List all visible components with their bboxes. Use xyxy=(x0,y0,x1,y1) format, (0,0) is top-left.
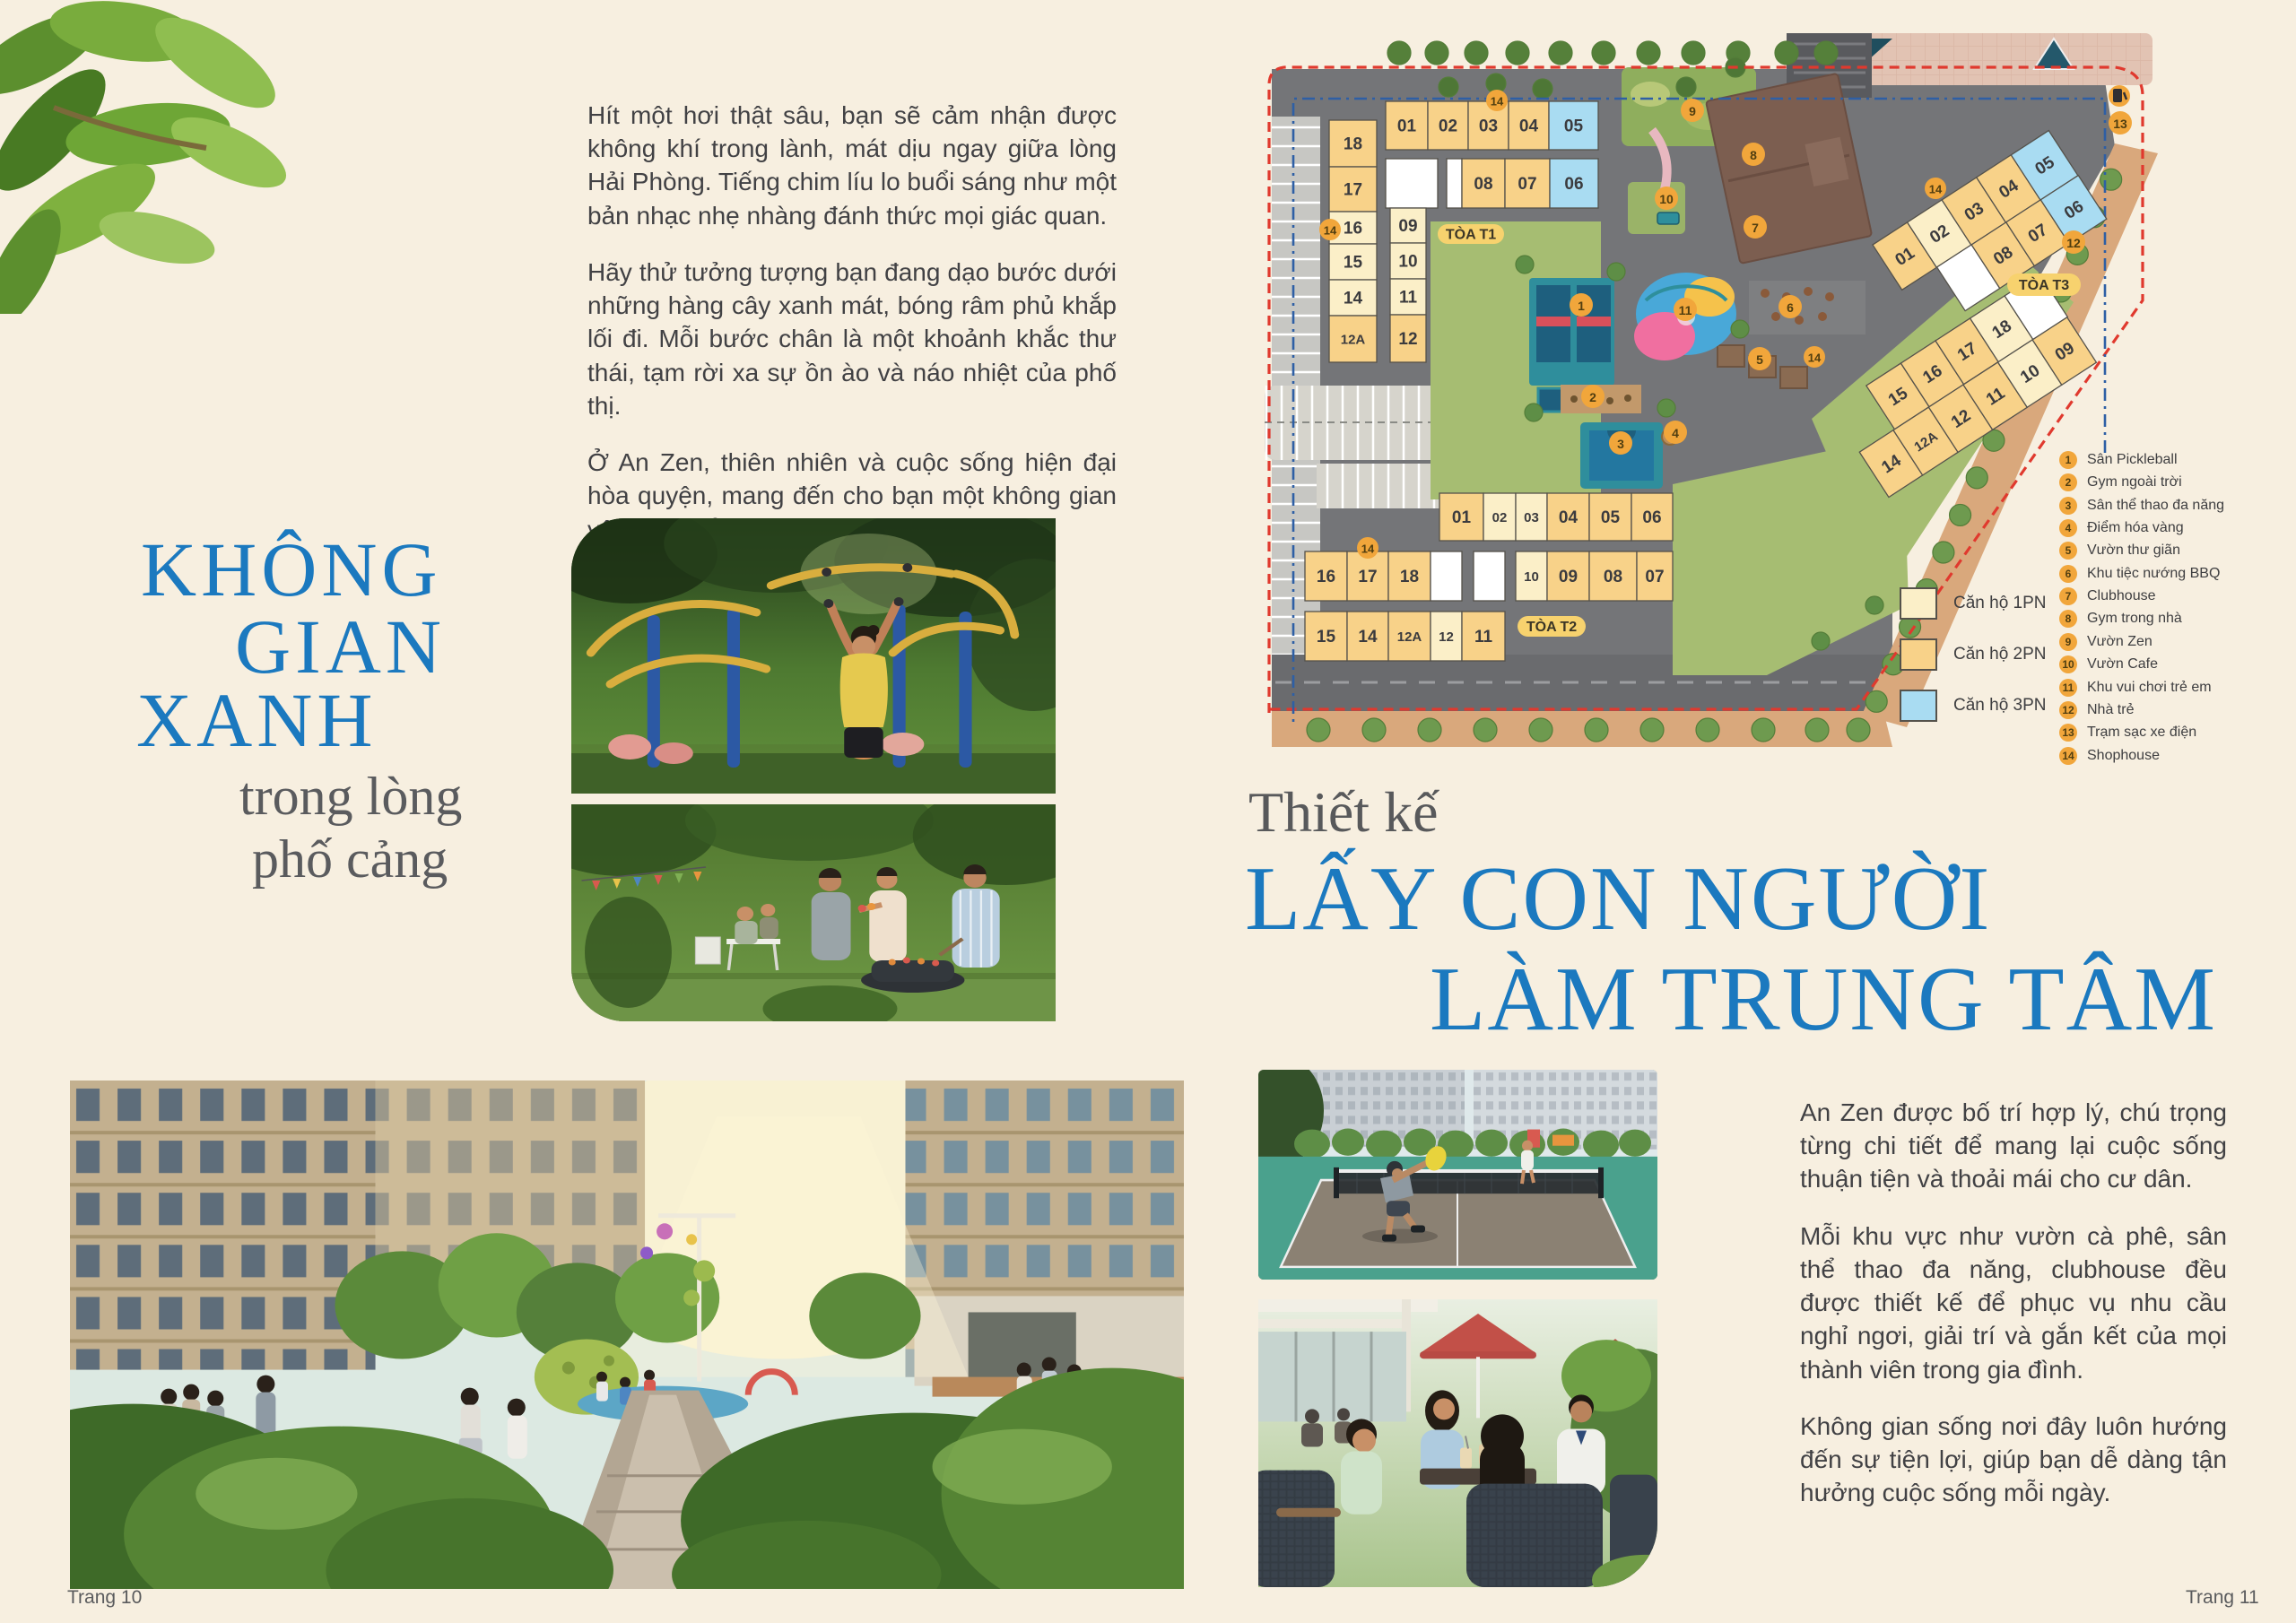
tree-icon xyxy=(1516,256,1534,273)
photo-cafe-family-art xyxy=(1258,1299,1657,1587)
unit-cell-label: 18 xyxy=(1400,568,1419,586)
unit-type-legend: Căn hộ 1PNCăn hộ 2PNCăn hộ 3PN xyxy=(1900,587,2047,741)
amenity-badge-number: 9 xyxy=(1689,104,1696,118)
legend-unit-type: Căn hộ 2PN xyxy=(1900,638,2047,671)
amenity-badge-number: 6 xyxy=(1787,300,1794,315)
unit-cell-label: 12A xyxy=(1397,629,1422,645)
unit-cell-label: 12A xyxy=(1341,333,1366,348)
tree-icon xyxy=(1775,41,1798,65)
legend-amenity-item: 14Shophouse xyxy=(2059,747,2224,765)
tree-icon xyxy=(1682,41,1705,65)
unit-cell-label: 09 xyxy=(1559,568,1578,586)
unit-cell-label: 14 xyxy=(1358,628,1378,647)
tree-icon xyxy=(1637,41,1660,65)
amenity-label: Điểm hóa vàng xyxy=(2087,520,2184,536)
tree-icon xyxy=(1418,718,1441,742)
amenity-badge: 11 xyxy=(2059,679,2077,697)
headline-line: KHÔNG xyxy=(141,531,442,608)
amenity-label: Vườn thư giãn xyxy=(2087,542,2180,559)
tree-icon xyxy=(1362,718,1386,742)
photo-bbq-garden xyxy=(571,804,1056,1021)
amenity-badge-number: 11 xyxy=(1679,303,1692,317)
leaf-decoration xyxy=(0,0,386,314)
amenity-badge-number: 5 xyxy=(1756,352,1763,367)
amenity-badge-number: 3 xyxy=(1617,437,1624,451)
tree-icon xyxy=(1865,596,1883,614)
tree-icon xyxy=(1549,41,1572,65)
amenity-badge: 4 xyxy=(2059,519,2077,537)
amenity-badge: 9 xyxy=(2059,633,2077,651)
legend-amenity-item: 13Trạm sạc xe điện xyxy=(2059,725,2224,742)
headline-sub: trong lòng xyxy=(239,769,462,823)
unit-cell-label: 14 xyxy=(1344,290,1363,308)
unit-type-swatch xyxy=(1900,587,1937,620)
photo-courtyard xyxy=(70,1081,1184,1589)
intro-text: Hít một hơi thật sâu, bạn sẽ cảm nhận đư… xyxy=(587,99,1117,569)
unit-cell-label: 08 xyxy=(1604,568,1622,586)
tree-icon xyxy=(1805,718,1829,742)
legend-amenity-item: 8Gym trong nhà xyxy=(2059,611,2224,629)
amenity-label: Clubhouse xyxy=(2087,588,2156,604)
amenity-badge-number: 1 xyxy=(1578,299,1585,313)
unit-cell-label: 16 xyxy=(1317,568,1335,586)
tree-icon xyxy=(1525,404,1543,421)
amenity-badge: 3 xyxy=(2059,497,2077,515)
amenity-badge: 5 xyxy=(2059,542,2077,560)
amenity-badge-number: 14 xyxy=(1929,183,1943,196)
unit-cell-label: 08 xyxy=(1474,175,1492,194)
tree-icon xyxy=(1607,263,1625,281)
headline-sub: phố cảng xyxy=(252,832,448,886)
unit-cell-label: 12 xyxy=(1398,330,1417,349)
unit-cell-label: 15 xyxy=(1344,254,1363,273)
headline-line: GIAN xyxy=(235,608,446,685)
page-number-right: Trang 11 xyxy=(2186,1587,2259,1609)
amenity-label: Vườn Zen xyxy=(2087,634,2152,650)
amenity-badge-number: 10 xyxy=(1659,192,1674,206)
legend-amenity-item: 10Vườn Cafe xyxy=(2059,656,2224,674)
amenity-badge-number: 12 xyxy=(2066,236,2081,250)
legend-amenity-item: 12Nhà trẻ xyxy=(2059,701,2224,719)
unit-cell-label: 17 xyxy=(1358,568,1377,586)
amenity-label: Shophouse xyxy=(2087,748,2160,764)
tree-icon xyxy=(1425,41,1448,65)
unit-cell-label: 04 xyxy=(1559,508,1578,527)
amenity-label: Vườn Cafe xyxy=(2087,656,2158,673)
unit-cell-label: 05 xyxy=(1564,117,1584,136)
legend-amenity-item: 6Khu tiệc nướng BBQ xyxy=(2059,565,2224,583)
photo-courtyard-art xyxy=(70,1081,1184,1589)
amenity-badge: 10 xyxy=(2059,655,2077,673)
page-number-left: Trang 10 xyxy=(67,1587,142,1609)
legend-amenity-item: 5Vườn thư giãn xyxy=(2059,542,2224,560)
unit-cell-label: 06 xyxy=(1564,175,1583,194)
unit-cell-label: 02 xyxy=(1492,510,1508,525)
brochure-spread: { "page_bg": "#F7EFE0", "accent_blue": "… xyxy=(0,0,2296,1623)
unit-cell-label: 16 xyxy=(1344,220,1362,239)
unit-cell-label: 10 xyxy=(1398,253,1417,272)
design-title-line1: LẤY CON NGƯỜI xyxy=(1245,854,1991,945)
tree-icon xyxy=(1814,41,1838,65)
design-text: An Zen được bố trí hợp lý, chú trọng từn… xyxy=(1800,1096,2227,1533)
tree-icon xyxy=(1307,718,1330,742)
amenity-badge-number: 14 xyxy=(1491,95,1504,108)
ev-charger-icon xyxy=(2109,85,2130,107)
design-paragraph: An Zen được bố trí hợp lý, chú trọng từn… xyxy=(1800,1096,2227,1196)
unit-cell-label: 15 xyxy=(1317,628,1336,647)
amenity-badge: 2 xyxy=(2059,473,2077,491)
unit-cell-label: 10 xyxy=(1524,569,1539,585)
unit-type-label: Căn hộ 2PN xyxy=(1953,645,2047,664)
tree-icon xyxy=(1529,718,1552,742)
unit-cell-label: 03 xyxy=(1479,117,1498,136)
unit-cell xyxy=(1386,159,1438,208)
unit-cell-label: 04 xyxy=(1519,117,1539,136)
legend-amenity-item: 3Sân thể thao đa năng xyxy=(2059,497,2224,515)
amenity-label: Gym trong nhà xyxy=(2087,611,2182,627)
unit-cell xyxy=(1431,551,1462,601)
legend-unit-type: Căn hộ 1PN xyxy=(1900,587,2047,620)
photo-bbq-garden-art xyxy=(571,804,1056,1021)
amenity-badge-number: 7 xyxy=(1752,221,1759,235)
amenity-label: Khu tiệc nướng BBQ xyxy=(2087,566,2220,582)
unit-cell-label: 01 xyxy=(1397,117,1417,136)
amenity-badge: 1 xyxy=(2059,451,2077,469)
tree-icon xyxy=(1640,718,1664,742)
photo-cafe-family xyxy=(1258,1299,1657,1587)
tree-icon xyxy=(1585,718,1608,742)
tree-icon xyxy=(1752,718,1775,742)
legend-amenity-item: 1Sân Pickleball xyxy=(2059,451,2224,469)
photo-outdoor-gym xyxy=(571,518,1056,794)
unit-cell-label: 11 xyxy=(1399,289,1418,308)
intro-paragraph: Hít một hơi thật sâu, bạn sẽ cảm nhận đư… xyxy=(587,99,1117,232)
amenity-label: Trạm sạc xe điện xyxy=(2087,725,2196,741)
unit-cell-label: 11 xyxy=(1474,628,1493,647)
tower-pill-label: TÒA T1 xyxy=(1446,226,1496,243)
amenity-badge: 12 xyxy=(2059,701,2077,719)
unit-cell-label: 01 xyxy=(1452,508,1472,527)
amenity-badge: 8 xyxy=(2059,610,2077,628)
tree-icon xyxy=(1676,77,1696,97)
amenity-badge: 7 xyxy=(2059,587,2077,605)
tree-icon xyxy=(1812,632,1830,650)
amenity-badge: 13 xyxy=(2059,724,2077,742)
tree-icon xyxy=(1933,542,1954,563)
unit-cell-label: 02 xyxy=(1439,117,1457,136)
unit-cell-label: 18 xyxy=(1344,135,1362,154)
unit-cell xyxy=(1474,551,1505,601)
amenity-label: Sân Pickleball xyxy=(2087,452,2178,468)
unit-type-label: Căn hộ 3PN xyxy=(1953,696,2047,716)
tower-pill-label: TÒA T3 xyxy=(2019,276,2069,293)
headline-line: XANH xyxy=(136,681,377,759)
amenity-legend: 1Sân Pickleball2Gym ngoài trời3Sân thể t… xyxy=(2059,451,2224,769)
amenity-badge-number: 13 xyxy=(2113,117,2127,131)
unit-type-swatch xyxy=(1900,690,1937,722)
design-kicker: Thiết kế xyxy=(1248,784,1438,841)
legend-amenity-item: 4Điểm hóa vàng xyxy=(2059,519,2224,537)
amenity-badge-number: 14 xyxy=(1808,352,1822,365)
unit-cell-label: 05 xyxy=(1601,508,1621,527)
unit-cell-label: 09 xyxy=(1398,217,1417,236)
amenity-label: Sân thể thao đa năng xyxy=(2087,498,2224,514)
tree-icon xyxy=(1474,718,1497,742)
tree-icon xyxy=(1533,79,1552,99)
legend-amenity-item: 9Vườn Zen xyxy=(2059,633,2224,651)
tree-icon xyxy=(1506,41,1529,65)
tree-icon xyxy=(1439,77,1458,97)
amenity-label: Gym ngoài trời xyxy=(2087,474,2182,490)
tree-icon xyxy=(1847,718,1870,742)
unit-type-label: Căn hộ 1PN xyxy=(1953,594,2047,613)
design-title-line2: LÀM TRUNG TÂM xyxy=(1245,954,2217,1046)
unit-type-swatch xyxy=(1900,638,1937,671)
tree-icon xyxy=(1966,467,1987,489)
photo-pickleball-art xyxy=(1258,1070,1657,1280)
tree-icon xyxy=(1592,41,1615,65)
tree-icon xyxy=(1696,718,1719,742)
unit-cell-label: 17 xyxy=(1344,181,1362,200)
unit-cell-label: 07 xyxy=(1645,568,1664,586)
tree-icon xyxy=(1950,504,1971,525)
photo-pickleball xyxy=(1258,1070,1657,1280)
amenity-badge-number: 4 xyxy=(1672,426,1679,440)
tower-pill-label: TÒA T2 xyxy=(1526,618,1577,635)
tree-icon xyxy=(1731,320,1749,338)
legend-amenity-item: 7Clubhouse xyxy=(2059,587,2224,605)
amenity-badge-number: 8 xyxy=(1750,148,1757,162)
unit-cell-label: 03 xyxy=(1524,510,1539,525)
amenity-badge: 6 xyxy=(2059,565,2077,583)
unit-cell xyxy=(1447,159,1462,208)
tree-icon xyxy=(1387,41,1411,65)
legend-amenity-item: 11Khu vui chơi trẻ em xyxy=(2059,679,2224,697)
amenity-badge-number: 14 xyxy=(1361,542,1375,556)
amenity-badge-number: 2 xyxy=(1589,390,1596,404)
amenity-label: Nhà trẻ xyxy=(2087,702,2134,718)
amenity-badge: 14 xyxy=(2059,747,2077,765)
legend-unit-type: Căn hộ 3PN xyxy=(1900,690,2047,722)
intro-paragraph: Hãy thử tưởng tượng bạn đang dạo bước dư… xyxy=(587,256,1117,422)
tree-icon xyxy=(2100,169,2122,190)
design-paragraph: Mỗi khu vực như vườn cà phê, sân thể tha… xyxy=(1800,1219,2227,1386)
unit-cell-label: 06 xyxy=(1642,508,1661,527)
legend-amenity-item: 2Gym ngoài trời xyxy=(2059,473,2224,491)
tree-icon xyxy=(1465,41,1488,65)
tree-icon xyxy=(1657,399,1675,417)
photo-outdoor-gym-art xyxy=(571,518,1056,794)
design-paragraph: Không gian sống nơi đây luôn hướng đến s… xyxy=(1800,1410,2227,1510)
unit-cell-label: 07 xyxy=(1518,175,1536,194)
amenity-label: Khu vui chơi trẻ em xyxy=(2087,680,2212,696)
unit-cell-label: 12 xyxy=(1439,629,1454,645)
amenity-badge-number: 14 xyxy=(1324,224,1337,238)
